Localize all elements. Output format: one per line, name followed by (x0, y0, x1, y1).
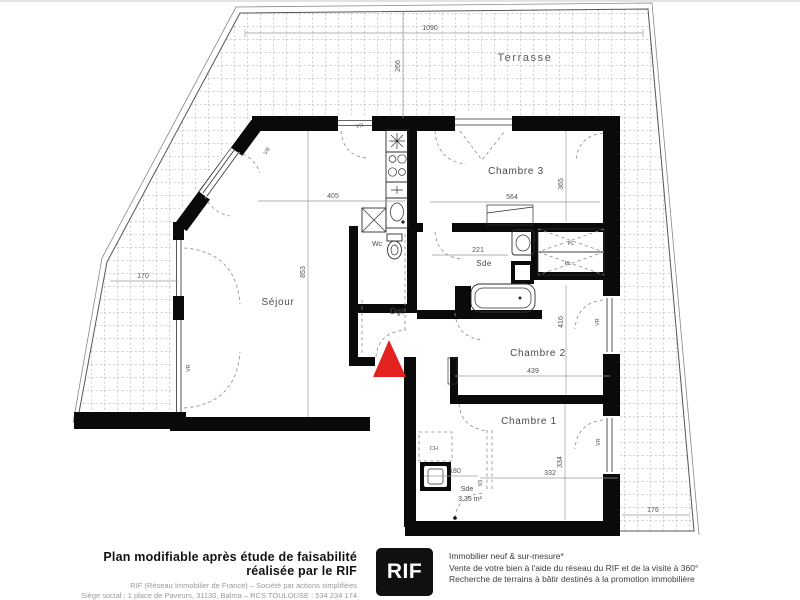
footer-company-line2: Siège social : 1 place de Paveurs, 31130… (57, 591, 357, 600)
dim-266: 266 (395, 60, 402, 72)
dim-334: 334 (557, 456, 564, 468)
label-wc: Wc (372, 241, 383, 248)
dim-853: 853 (300, 266, 307, 278)
dim-1090: 1090 (422, 25, 438, 32)
label-dgt: Dgt (390, 307, 404, 316)
label-chambre3: Chambre 3 (488, 166, 544, 177)
page-top-edge (0, 0, 800, 2)
label-pl-1: PL (568, 241, 575, 247)
dim-365: 365 (558, 178, 565, 190)
window-sejour-upper (173, 240, 184, 296)
rif-logo: RIF (376, 548, 433, 596)
floor-plan-page: Terrasse Séjour Chambre 3 Chambre 2 Cham… (0, 0, 800, 600)
footer: Plan modifiable après étude de faisabili… (0, 538, 800, 600)
dim-221: 221 (472, 247, 484, 254)
window-chambre1 (603, 416, 620, 474)
label-terrasse: Terrasse (498, 52, 553, 64)
footer-company-lines: RIF (Réseau Immobilier de France) – Soci… (57, 581, 357, 600)
window-top-chambre3 (455, 113, 512, 131)
footer-left-block: Plan modifiable après étude de faisabili… (57, 550, 357, 600)
dim-93: 93 (478, 480, 484, 486)
footer-service-line1: Immobilier neuf & sur-mesure* (449, 551, 698, 563)
footer-service-line3: Recherche de terrains à bâtir destinés à… (449, 574, 698, 586)
label-chambre1: Chambre 1 (501, 416, 557, 427)
hood-icon (389, 133, 405, 149)
label-pl-2: PL (565, 261, 572, 267)
dim-405: 405 (327, 193, 339, 200)
footer-right-block: Immobilier neuf & sur-mesure* Vente de v… (449, 551, 698, 586)
window-sejour-lower (173, 320, 184, 412)
window-chambre2 (603, 296, 620, 354)
label-sde2: Sde (461, 486, 474, 493)
dim-332: 332 (544, 470, 556, 477)
label-vr-top: VR (355, 123, 363, 130)
dim-176: 176 (647, 507, 659, 514)
label-vr-sejour: VR (186, 364, 192, 372)
label-ch-closet: CH (430, 446, 438, 452)
label-sejour: Séjour (261, 297, 294, 308)
dim-439: 439 (527, 368, 539, 375)
dim-180: 180 (449, 468, 461, 475)
label-vr-chambre1: VR (596, 438, 602, 446)
footer-title: Plan modifiable après étude de faisabili… (57, 550, 357, 578)
footer-service-line2: Vente de votre bien à l'aide du réseau d… (449, 563, 698, 575)
floor-plan-drawing: Terrasse Séjour Chambre 3 Chambre 2 Cham… (0, 0, 800, 540)
footer-company-line1: RIF (Réseau Immobilier de France) – Soci… (57, 581, 357, 591)
dim-416: 416 (558, 316, 565, 328)
dim-170: 170 (137, 273, 149, 280)
dim-564: 564 (506, 194, 518, 201)
label-vr-chambre2: VR (595, 318, 601, 326)
label-sde: Sde (476, 259, 492, 268)
label-chambre2: Chambre 2 (510, 348, 566, 359)
label-sde2-area: 3.35 m² (458, 496, 482, 503)
